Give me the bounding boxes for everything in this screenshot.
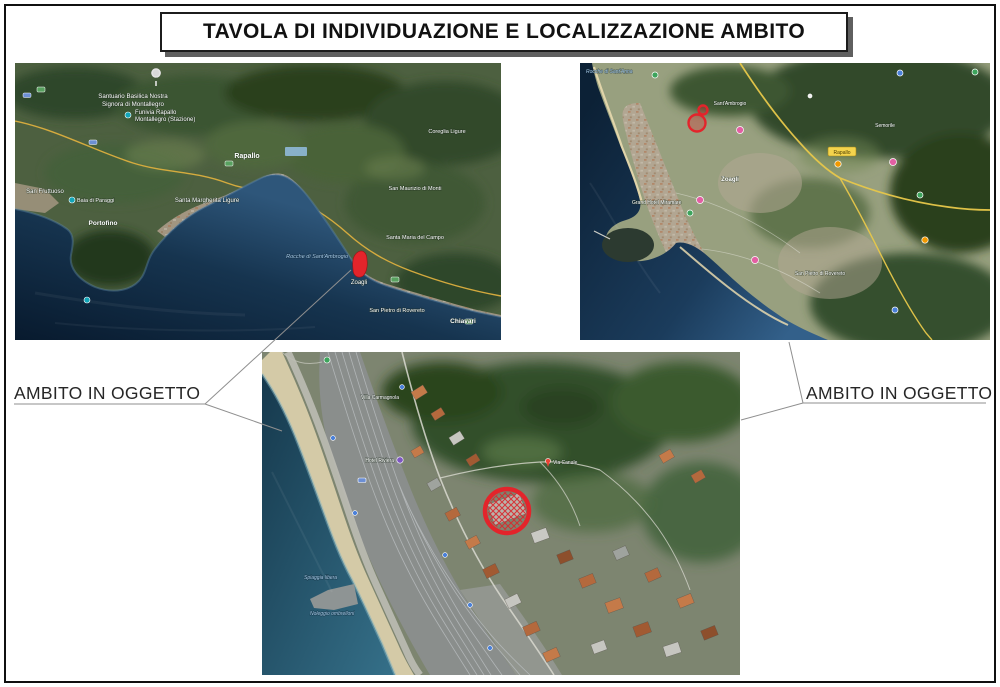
map-label: Signora di Montallegro — [102, 101, 164, 108]
motorway-shield-icon — [225, 161, 233, 166]
motorway-shield-icon — [391, 277, 399, 282]
map-label-sea: Rocche di Sant'Ambrogio — [286, 254, 348, 260]
cablecar-pin-icon — [125, 112, 131, 118]
place-pin-icon — [737, 127, 744, 134]
map-overview-satellite: Santuario Basilica Nostra Signora di Mon… — [15, 63, 501, 340]
place-pin-icon — [488, 646, 493, 651]
map-label-town: Portofino — [89, 220, 118, 227]
place-pin-icon — [835, 161, 841, 167]
map-label: Santuario Basilica Nostra — [98, 93, 168, 100]
map-label-sea: Spiaggia libera — [304, 575, 337, 581]
ambito-marker-overview — [353, 251, 368, 277]
map-label: Hotel Riviera — [365, 458, 394, 464]
beach-pin-icon — [84, 297, 90, 303]
ambito-callout-right: AMBITO IN OGGETTO — [806, 383, 992, 404]
map-label: Via Canale — [553, 460, 578, 466]
map-label-town: Rapallo — [234, 153, 259, 160]
map-label: Sant'Ambrogio — [714, 101, 747, 107]
page-title: TAVOLA DI INDIVIDUAZIONE E LOCALIZZAZION… — [203, 20, 805, 44]
place-pin-icon — [697, 197, 704, 204]
sports-field — [285, 147, 307, 156]
map-label: San Maurizio di Monti — [389, 186, 442, 192]
beach-pin-icon — [69, 197, 75, 203]
map-label: San Fruttuoso — [26, 189, 64, 195]
map-town-satellite: Rapallo — [580, 63, 990, 340]
place-pin-icon — [808, 94, 812, 98]
tavola-page: TAVOLA DI INDIVIDUAZIONE E LOCALIZZAZION… — [0, 0, 1000, 687]
place-pin-icon — [922, 237, 928, 243]
place-pin-icon — [897, 70, 903, 76]
map-site-satellite: Villa Carmagnola Hotel Riviera Via Canal… — [262, 352, 740, 675]
place-pin-icon — [353, 511, 358, 516]
route-shield-icon — [89, 140, 97, 145]
map-label: Semorile — [875, 123, 895, 129]
title-box: TAVOLA DI INDIVIDUAZIONE E LOCALIZZAZION… — [160, 12, 848, 52]
map-label: Coreglia Ligure — [428, 129, 465, 135]
map-label: Baia di Paraggi — [77, 198, 114, 204]
place-pin-icon — [892, 307, 898, 313]
map-label: San Pietro di Rovereto — [369, 308, 424, 314]
toll-sign-label: Rapallo — [834, 150, 851, 156]
leader-line-right-down — [741, 403, 803, 420]
ambito-callout-left: AMBITO IN OGGETTO — [14, 383, 200, 404]
route-shield-icon — [23, 93, 31, 98]
map-label-town: Zoagli — [351, 280, 367, 286]
motorway-toll-sign: Rapallo — [828, 147, 856, 156]
place-pin-icon — [400, 385, 405, 390]
place-pin-icon — [890, 159, 897, 166]
motorway-shield-icon — [37, 87, 45, 92]
leader-line-right-up — [789, 342, 803, 403]
place-pin-icon — [917, 192, 923, 198]
map-label: San Pietro di Rovereto — [795, 271, 846, 277]
map-label: Grand Hotel Miramare — [632, 200, 682, 206]
map-label-sea: Rocche di Sant'Anna — [586, 69, 633, 75]
place-pin-icon — [468, 603, 473, 608]
place-pin-icon — [443, 553, 448, 558]
map-label: Villa Carmagnola — [361, 395, 399, 401]
place-pin-icon — [324, 357, 330, 363]
map-label: Montallegro (Stazione) — [135, 117, 195, 123]
map-label-town: Zoagli — [721, 177, 739, 183]
map-label-sea: Noleggio ombrelloni — [310, 611, 355, 617]
place-pin-icon — [752, 257, 759, 264]
place-pin-icon — [331, 436, 336, 441]
lodging-pin-icon — [397, 457, 403, 463]
ambito-marker-site — [484, 488, 530, 534]
map-label-town: Chiavari — [450, 318, 476, 325]
place-pin-icon — [687, 210, 693, 216]
route-shield-icon — [358, 478, 366, 483]
map-label: Santa Maria del Campo — [386, 235, 444, 241]
place-pin-icon — [652, 72, 658, 78]
map-label: Funivia Rapallo — [135, 110, 177, 116]
map-label-town: Santa Margherita Ligure — [175, 198, 240, 204]
place-pin-icon — [972, 69, 978, 75]
